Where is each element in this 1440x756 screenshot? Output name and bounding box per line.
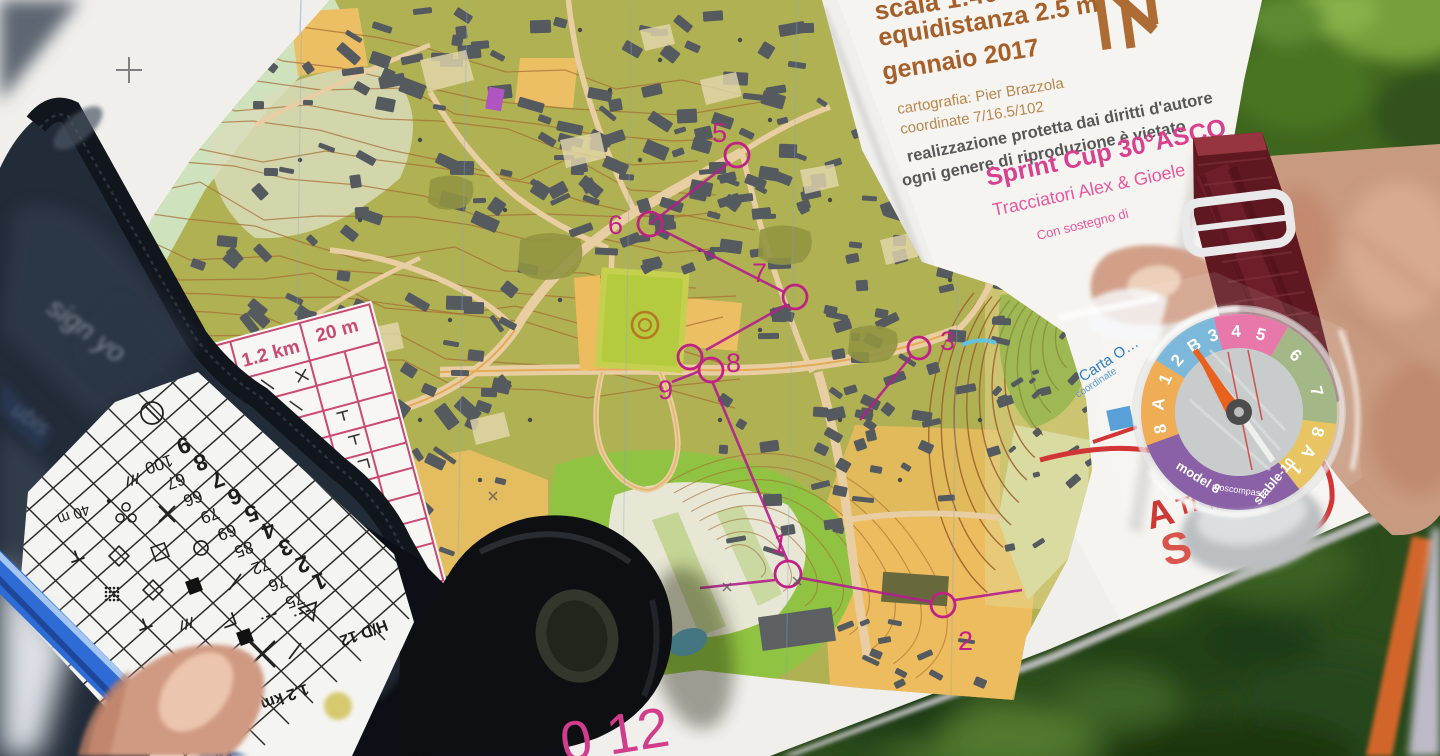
svg-text:A: A [1148, 397, 1168, 411]
svg-text:4: 4 [1231, 322, 1242, 341]
